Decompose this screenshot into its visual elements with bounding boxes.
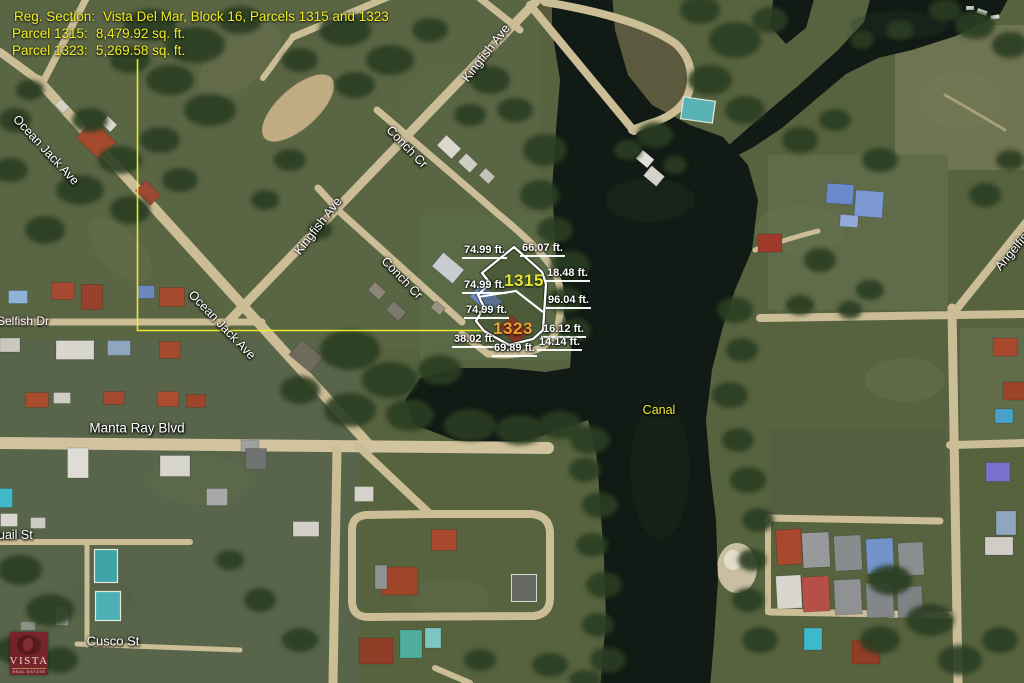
measurement-label: 69.89 ft. [492,342,537,357]
measurement-label: 66.07 ft. [520,242,565,257]
reg-section-label: Reg. Section: [14,9,95,24]
logo-crest-icon [17,635,41,655]
parcel-1315-area-line: Parcel 1315:8,479.92 sq. ft. [12,26,185,41]
measurement-label: 38.02 ft. [452,333,497,348]
measurement-label: 14.14 ft. [537,336,582,351]
measurement-label: 18.48 ft. [545,267,590,282]
parcel-1323-area-label: Parcel 1323: [12,43,88,58]
reg-section-line: Reg. Section:Vista Del Mar, Block 16, Pa… [14,9,389,24]
logo-name: VISTA [10,656,49,667]
canal-label: Canal [643,403,676,417]
parcel-1323-area-line: Parcel 1323:5,269.58 sq. ft. [12,43,185,58]
reg-section-value: Vista Del Mar, Block 16, Parcels 1315 an… [103,9,389,24]
street-label-quail-st: uail St [0,528,33,542]
vista-real-estate-logo: VISTA REAL ESTATE [10,632,48,675]
parcel-1315-id-label: 1315 [504,271,544,291]
parcel-1323-area-value: 5,269.58 sq. ft. [96,43,185,58]
street-label-manta-ray-blvd: Manta Ray Blvd [89,421,184,436]
parcel-1323-id-label: 1323 [493,319,533,339]
measurement-label: 74.99 ft. [464,304,509,319]
measurement-label: 74.99 ft. [462,279,507,294]
street-label-cusco-st: Cusco St [87,634,140,649]
parcel-1315-area-value: 8,479.92 sq. ft. [96,26,185,41]
measurement-label: 96.04 ft. [546,294,591,309]
callout-line [138,59,486,331]
measurement-label: 74.99 ft. [462,244,507,259]
logo-subtitle: REAL ESTATE [12,668,46,675]
parcel-1315-area-label: Parcel 1315: [12,26,88,41]
street-label-selfish-dr: Selfish Dr [0,314,49,328]
aerial-parcel-map: Reg. Section:Vista Del Mar, Block 16, Pa… [0,0,1024,683]
